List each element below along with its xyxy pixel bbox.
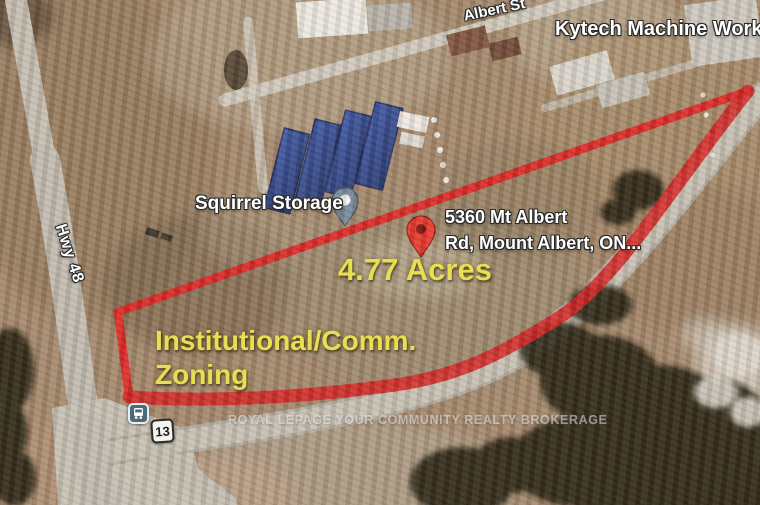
address-line-1: 5360 Mt Albert bbox=[445, 204, 641, 230]
brokerage-watermark: ROYAL LEPAGE YOUR COMMUNITY REALTY BROKE… bbox=[228, 413, 548, 427]
transit-station-icon[interactable] bbox=[128, 403, 149, 424]
bus-icon bbox=[132, 407, 145, 420]
zoning-annotation: Institutional/Comm. Zoning bbox=[155, 324, 416, 392]
zoning-line-2: Zoning bbox=[155, 358, 416, 392]
place-label-kytech: Kytech Machine Works bbox=[555, 18, 760, 41]
route-number: 13 bbox=[155, 423, 170, 439]
address-label: 5360 Mt Albert Rd, Mount Albert, ON... bbox=[445, 204, 641, 256]
place-label-squirrel-storage: Squirrel Storage bbox=[195, 193, 343, 215]
aerial-map-canvas: Albert St Kytech Machine Works Squirrel … bbox=[0, 0, 760, 505]
route-shield-13: 13 bbox=[150, 418, 175, 444]
acreage-annotation: 4.77 Acres bbox=[338, 252, 492, 288]
zoning-line-1: Institutional/Comm. bbox=[155, 324, 416, 358]
